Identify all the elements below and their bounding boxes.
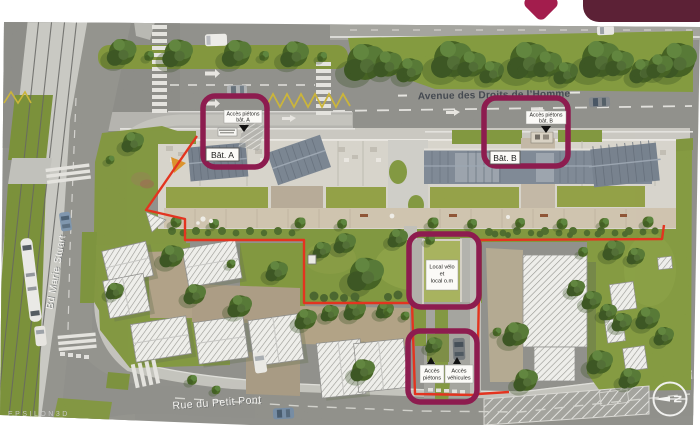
svg-text:piétons: piétons (423, 376, 441, 382)
svg-text:Accès: Accès (451, 369, 466, 375)
svg-text:Bât. A: Bât. A (211, 150, 234, 160)
svg-text:Bât. B: Bât. B (493, 153, 517, 163)
svg-text:EPSILON3D: EPSILON3D (8, 411, 70, 418)
svg-text:Local vélo: Local vélo (429, 265, 454, 271)
svg-text:Accès: Accès (424, 369, 439, 375)
svg-text:local o.m: local o.m (431, 279, 454, 285)
svg-text:et: et (440, 272, 445, 278)
svg-text:véhicules: véhicules (447, 376, 471, 382)
svg-text:N: N (671, 395, 683, 403)
svg-text:bât. B: bât. B (539, 119, 553, 125)
svg-text:bât. A: bât. A (236, 118, 250, 124)
